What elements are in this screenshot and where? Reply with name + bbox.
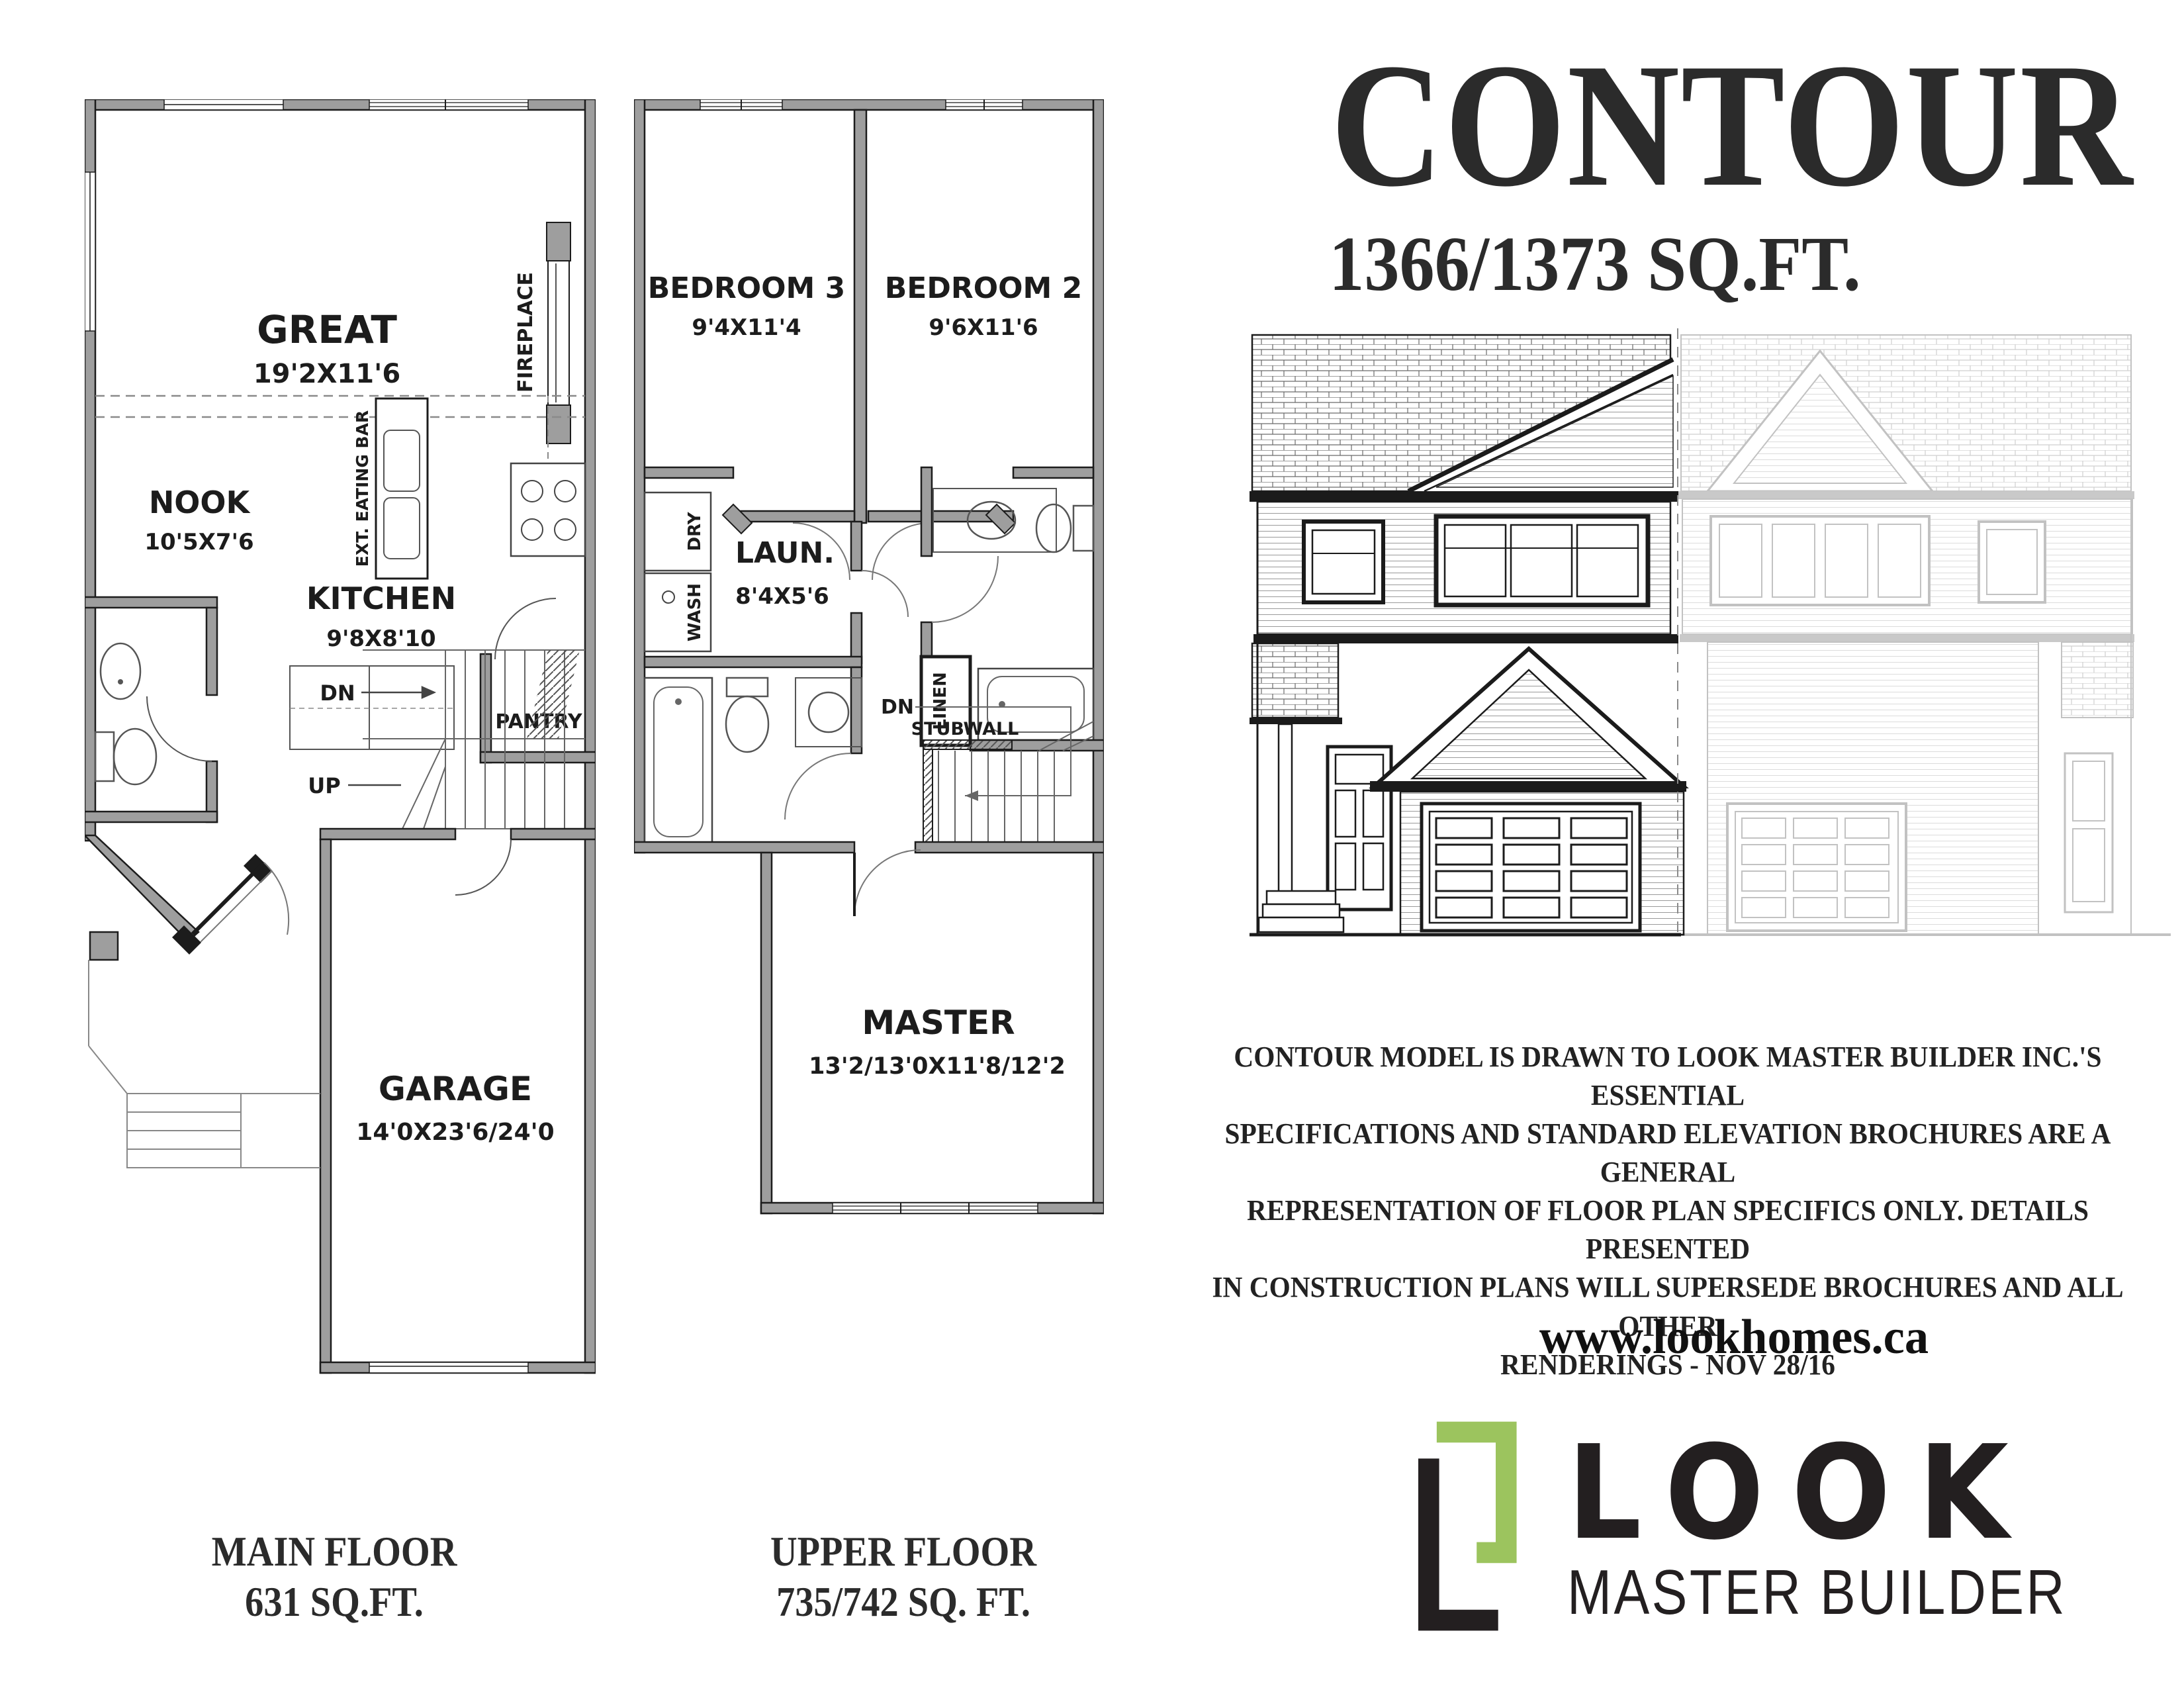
master-bedroom: MASTER 13'2/13'0X11'8/12'2 [761,842,1104,1213]
stairs-up-label: UP [308,773,340,798]
website-url: www.lookhomes.ca [1351,1309,2116,1366]
elevation-left-unit [1250,335,1686,935]
upper-dn-label: DN [881,696,914,719]
great-room-label: GREAT [257,307,397,352]
disclaimer-line: REPRESENTATION OF FLOOR PLAN SPECIFICS O… [1186,1192,2150,1268]
front-porch [89,932,320,1168]
fireplace: FIREPLACE [514,222,570,444]
main-floor-caption-line2: 631 SQ.FT. [133,1577,535,1627]
elevation-garage-door [1422,804,1640,931]
laundry-label: LAUN. [735,536,835,570]
upper-floor-caption-line1: UPPER FLOOR [702,1526,1104,1577]
garage-dims: 14'0X23'6/24'0 [356,1119,554,1146]
stubwall [923,740,1012,842]
elevation-small-window [1304,522,1383,602]
bedroom2-label: BEDROOM 2 [885,271,1083,305]
stairs-dn-label: DN [320,680,355,706]
bath-toilet [726,678,768,752]
great-room-dims: 19'2X11'6 [253,359,400,389]
upper-floor-plan: BEDROOM 3 9'4X11'4 BEDROOM 2 9'6X11'6 DR… [634,99,1104,1218]
elevation-drawing [1244,323,2184,978]
washer: WASH [645,573,711,651]
ensuite-toilet [1036,504,1093,552]
model-sqft: 1366/1373 SQ.FT. [1291,225,1899,303]
bedroom-closets [645,467,1093,580]
bath-tub [645,678,712,846]
stubwall-label: STUBWALL [911,719,1019,739]
fireplace-label: FIREPLACE [514,272,537,393]
main-floor-plan: FIREPLACE GREAT 19'2X11'6 NOOK 10'5X7'6 … [85,99,596,1456]
bedroom3-dims: 9'4X11'4 [692,314,801,341]
kitchen-dims: 9'8X8'10 [326,626,435,652]
logo-wordmark: LOOK [1567,1429,2036,1558]
main-floor-caption-line1: MAIN FLOOR [133,1526,535,1577]
bedroom2-dims: 9'6X11'6 [929,314,1038,341]
eating-bar-label: EXT. EATING BAR [353,410,372,567]
kitchen-label: KITCHEN [306,581,456,616]
look-logo-icon [1418,1415,1547,1637]
master-window [833,1203,1038,1213]
elevation-triple-window [1436,516,1648,605]
bedroom3-label: BEDROOM 3 [648,271,846,305]
brochure-page: FIREPLACE GREAT 19'2X11'6 NOOK 10'5X7'6 … [0,0,2184,1688]
logo-green-bracket [1437,1422,1517,1564]
elevation-entry-door [1328,747,1391,910]
bedroom2-window [946,99,1023,110]
powder-toilet [95,729,156,784]
stove [511,396,585,556]
powder-room [85,597,217,822]
bedroom3-window [700,99,782,110]
master-label: MASTER [862,1004,1015,1042]
dryer-label: DRY [685,511,705,551]
master-dims: 13'2/13'0X11'8/12'2 [809,1053,1066,1080]
elevation-right-unit [1678,335,2171,935]
upper-floor-caption-line2: 735/742 SQ. FT. [702,1577,1104,1627]
kitchen-counter [290,666,454,749]
nook-label: NOOK [149,485,251,520]
model-title: CONTOUR [1330,36,2111,214]
logo-subtitle: MASTER BUILDER [1567,1561,2067,1624]
laundry-dims: 8'4X5'6 [735,583,829,610]
powder-sink [101,643,140,699]
disclaimer-line: SPECIFICATIONS AND STANDARD ELEVATION BR… [1186,1115,2150,1192]
upper-floor-caption: UPPER FLOOR 735/742 SQ. FT. [702,1526,1104,1626]
great-room-window-left [85,172,95,331]
main-bath [634,657,862,853]
kitchen-island: EXT. EATING BAR [353,399,428,579]
elevation-steps [1259,891,1343,932]
main-floor-caption: MAIN FLOOR 631 SQ.FT. [133,1526,535,1626]
nook-dims: 10'5X7'6 [144,529,253,555]
elevation-garage-gable [1370,649,1686,792]
disclaimer-line: CONTOUR MODEL IS DRAWN TO LOOK MASTER BU… [1186,1038,2150,1115]
dryer: DRY [645,492,711,571]
garage-door-opening [369,1362,528,1373]
garage-label: GARAGE [379,1070,532,1108]
washer-label: WASH [685,583,705,641]
